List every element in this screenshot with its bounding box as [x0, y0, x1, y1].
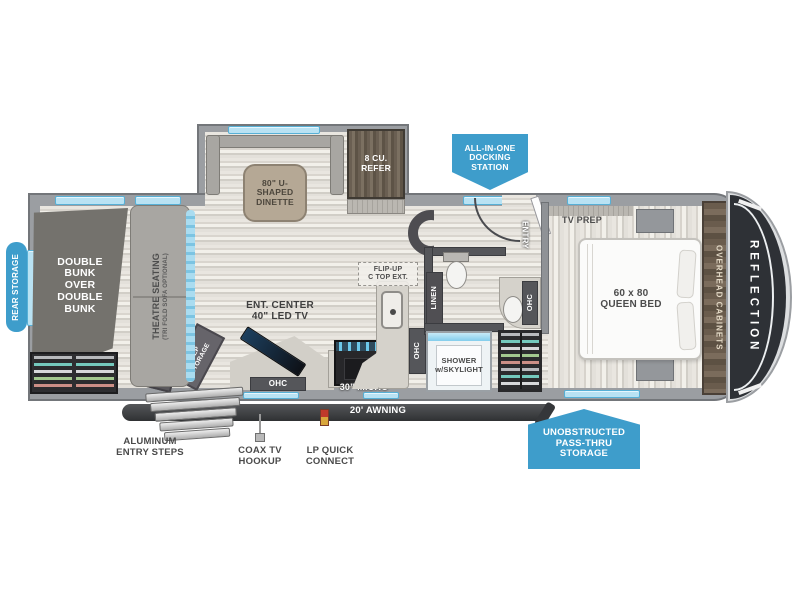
bed-label: 60 x 80 QUEEN BED [600, 288, 661, 310]
hanger-rod [76, 356, 114, 390]
window [55, 196, 125, 205]
hanger-rod [34, 356, 72, 390]
nightstand-bottom [636, 357, 674, 381]
toilet [446, 261, 467, 289]
ohc-label: OHC [526, 294, 534, 311]
lp-label: LP QUICK CONNECT [294, 446, 366, 467]
wardrobe-closet [498, 330, 542, 392]
dinette-sofa-back [206, 135, 344, 148]
refrigerator: 8 CU. REFER [347, 129, 405, 199]
closet-pole [520, 333, 522, 389]
rear-storage-label: REAR STORAGE [12, 254, 21, 321]
lp-marker-top [321, 410, 328, 417]
window [567, 196, 611, 205]
window [135, 196, 181, 205]
queen-bed: 60 x 80 QUEEN BED [578, 238, 702, 360]
range-knobs [336, 342, 378, 351]
bunk-label: DOUBLE BUNK OVER DOUBLE BUNK [57, 257, 103, 316]
shower-glass [428, 333, 490, 341]
ohc-kitchen-bar: OHC [250, 377, 306, 391]
linen-label: LINEN [430, 286, 438, 310]
coax-label: COAX TV HOOKUP [226, 446, 294, 467]
bath-sink [503, 296, 523, 323]
mattress-fold [587, 244, 593, 354]
lp-marker [320, 409, 329, 426]
rear-storage-badge: REAR STORAGE [6, 242, 27, 332]
bedroom-wall [541, 202, 549, 334]
awning-label: 20' AWNING [328, 406, 428, 417]
window [243, 392, 299, 399]
tv-prep-label: TV PREP [554, 215, 610, 225]
refer-platform [347, 199, 405, 214]
pillow [676, 249, 696, 298]
lp-marker-bottom [321, 417, 328, 425]
theatre-label: THEATRE SEATING [151, 253, 161, 340]
linen-cabinet: LINEN [426, 272, 443, 324]
dinette-table: 80" U-SHAPED DINETTE [243, 164, 307, 222]
cap-accent-line [734, 203, 774, 391]
dinette-sofa-left [206, 135, 220, 195]
theatre-sub-label: (TRI FOLD SOFA OPTIONAL) [163, 253, 170, 340]
shower-label: SHOWER w/SKYLIGHT [435, 357, 483, 374]
overhead-cabinets-label: OVERHEAD CABINETS [714, 245, 723, 350]
dinette-label: 80" U-SHAPED DINETTE [245, 179, 305, 208]
window [363, 392, 399, 399]
shower: SHOWER w/SKYLIGHT [426, 331, 492, 392]
ohc-label: OHC [269, 380, 287, 389]
theatre-labels: THEATRE SEATING (TRI FOLD SOFA OPTIONAL) [134, 210, 186, 382]
ent-center-label: ENT. CENTER 40" LED TV [226, 300, 334, 322]
ohc-label: OHC [413, 342, 421, 359]
shower-pan: SHOWER w/SKYLIGHT [436, 345, 482, 386]
docking-station-badge: ALL-IN-ONE DOCKING STATION [452, 134, 528, 190]
faucet [390, 309, 396, 315]
coax-line [259, 414, 261, 434]
coax-marker [255, 433, 265, 442]
refer-label: 8 CU. REFER [361, 154, 391, 173]
window [228, 126, 320, 134]
theatre-accent [186, 210, 195, 382]
dinette-sofa-right [330, 135, 344, 195]
ohc-bath-vertical: OHC [522, 281, 538, 325]
entry-label-wrap: ENTRY [515, 211, 533, 259]
window [564, 390, 640, 398]
kitchen-sink [381, 291, 403, 329]
entry-label: ENTRY [520, 221, 529, 249]
bunk-wardrobe [30, 352, 118, 394]
entry-steps-label: ALUMINUM ENTRY STEPS [88, 437, 212, 458]
nightstand-top [636, 209, 674, 233]
floorplan: DOUBLE BUNK OVER DOUBLE BUNK STEP STORAG… [0, 0, 800, 600]
flip-up-counter-label: FLIP-UP C TOP EXT. [358, 262, 418, 286]
front-cap: REFLECTION [730, 195, 786, 399]
pillow [676, 301, 696, 350]
